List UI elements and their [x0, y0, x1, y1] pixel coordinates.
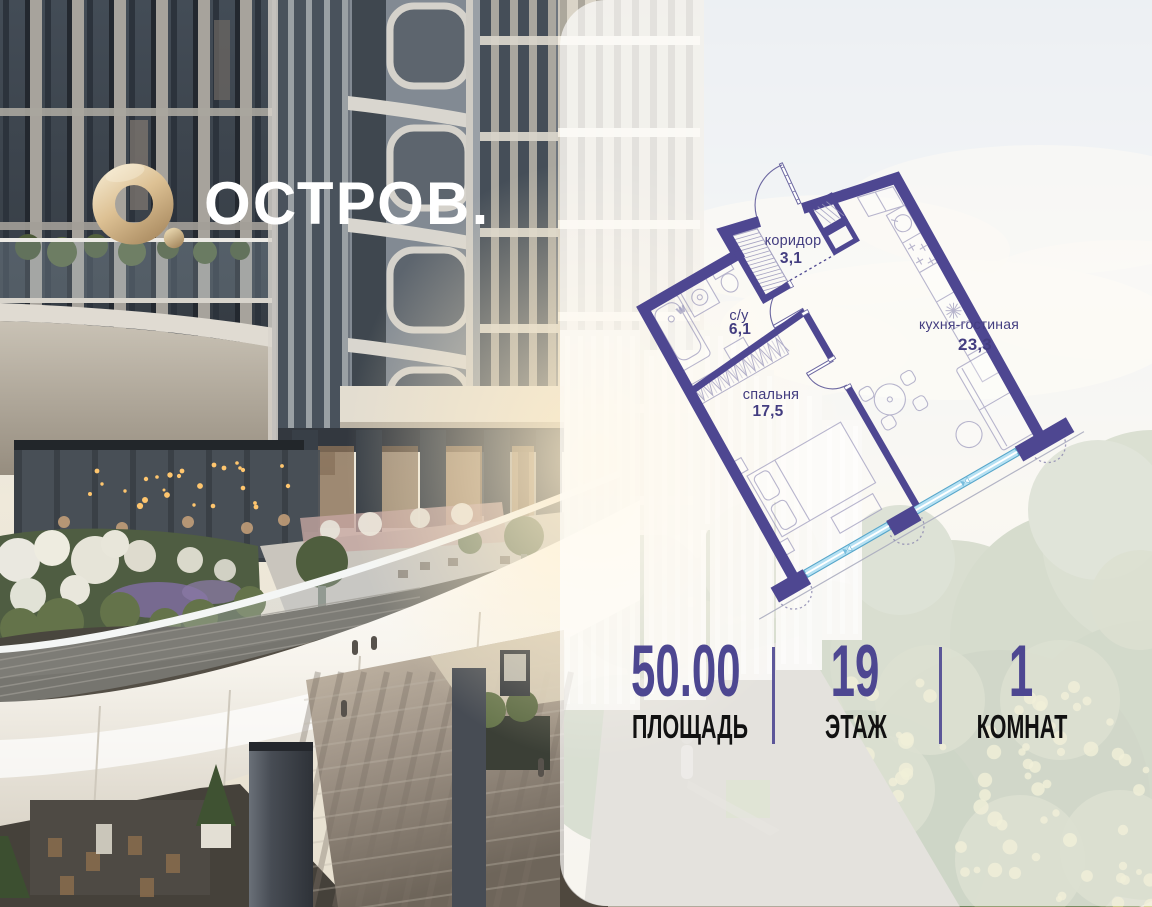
svg-text:23,3: 23,3 [958, 335, 992, 354]
svg-text:17,5: 17,5 [753, 403, 784, 420]
svg-text:6,1: 6,1 [729, 321, 751, 338]
svg-text:кухня-гостиная: кухня-гостиная [919, 316, 1019, 332]
svg-text:3,1: 3,1 [780, 250, 802, 267]
svg-text:спальня: спальня [743, 387, 799, 403]
svg-text:коридор: коридор [765, 233, 822, 249]
